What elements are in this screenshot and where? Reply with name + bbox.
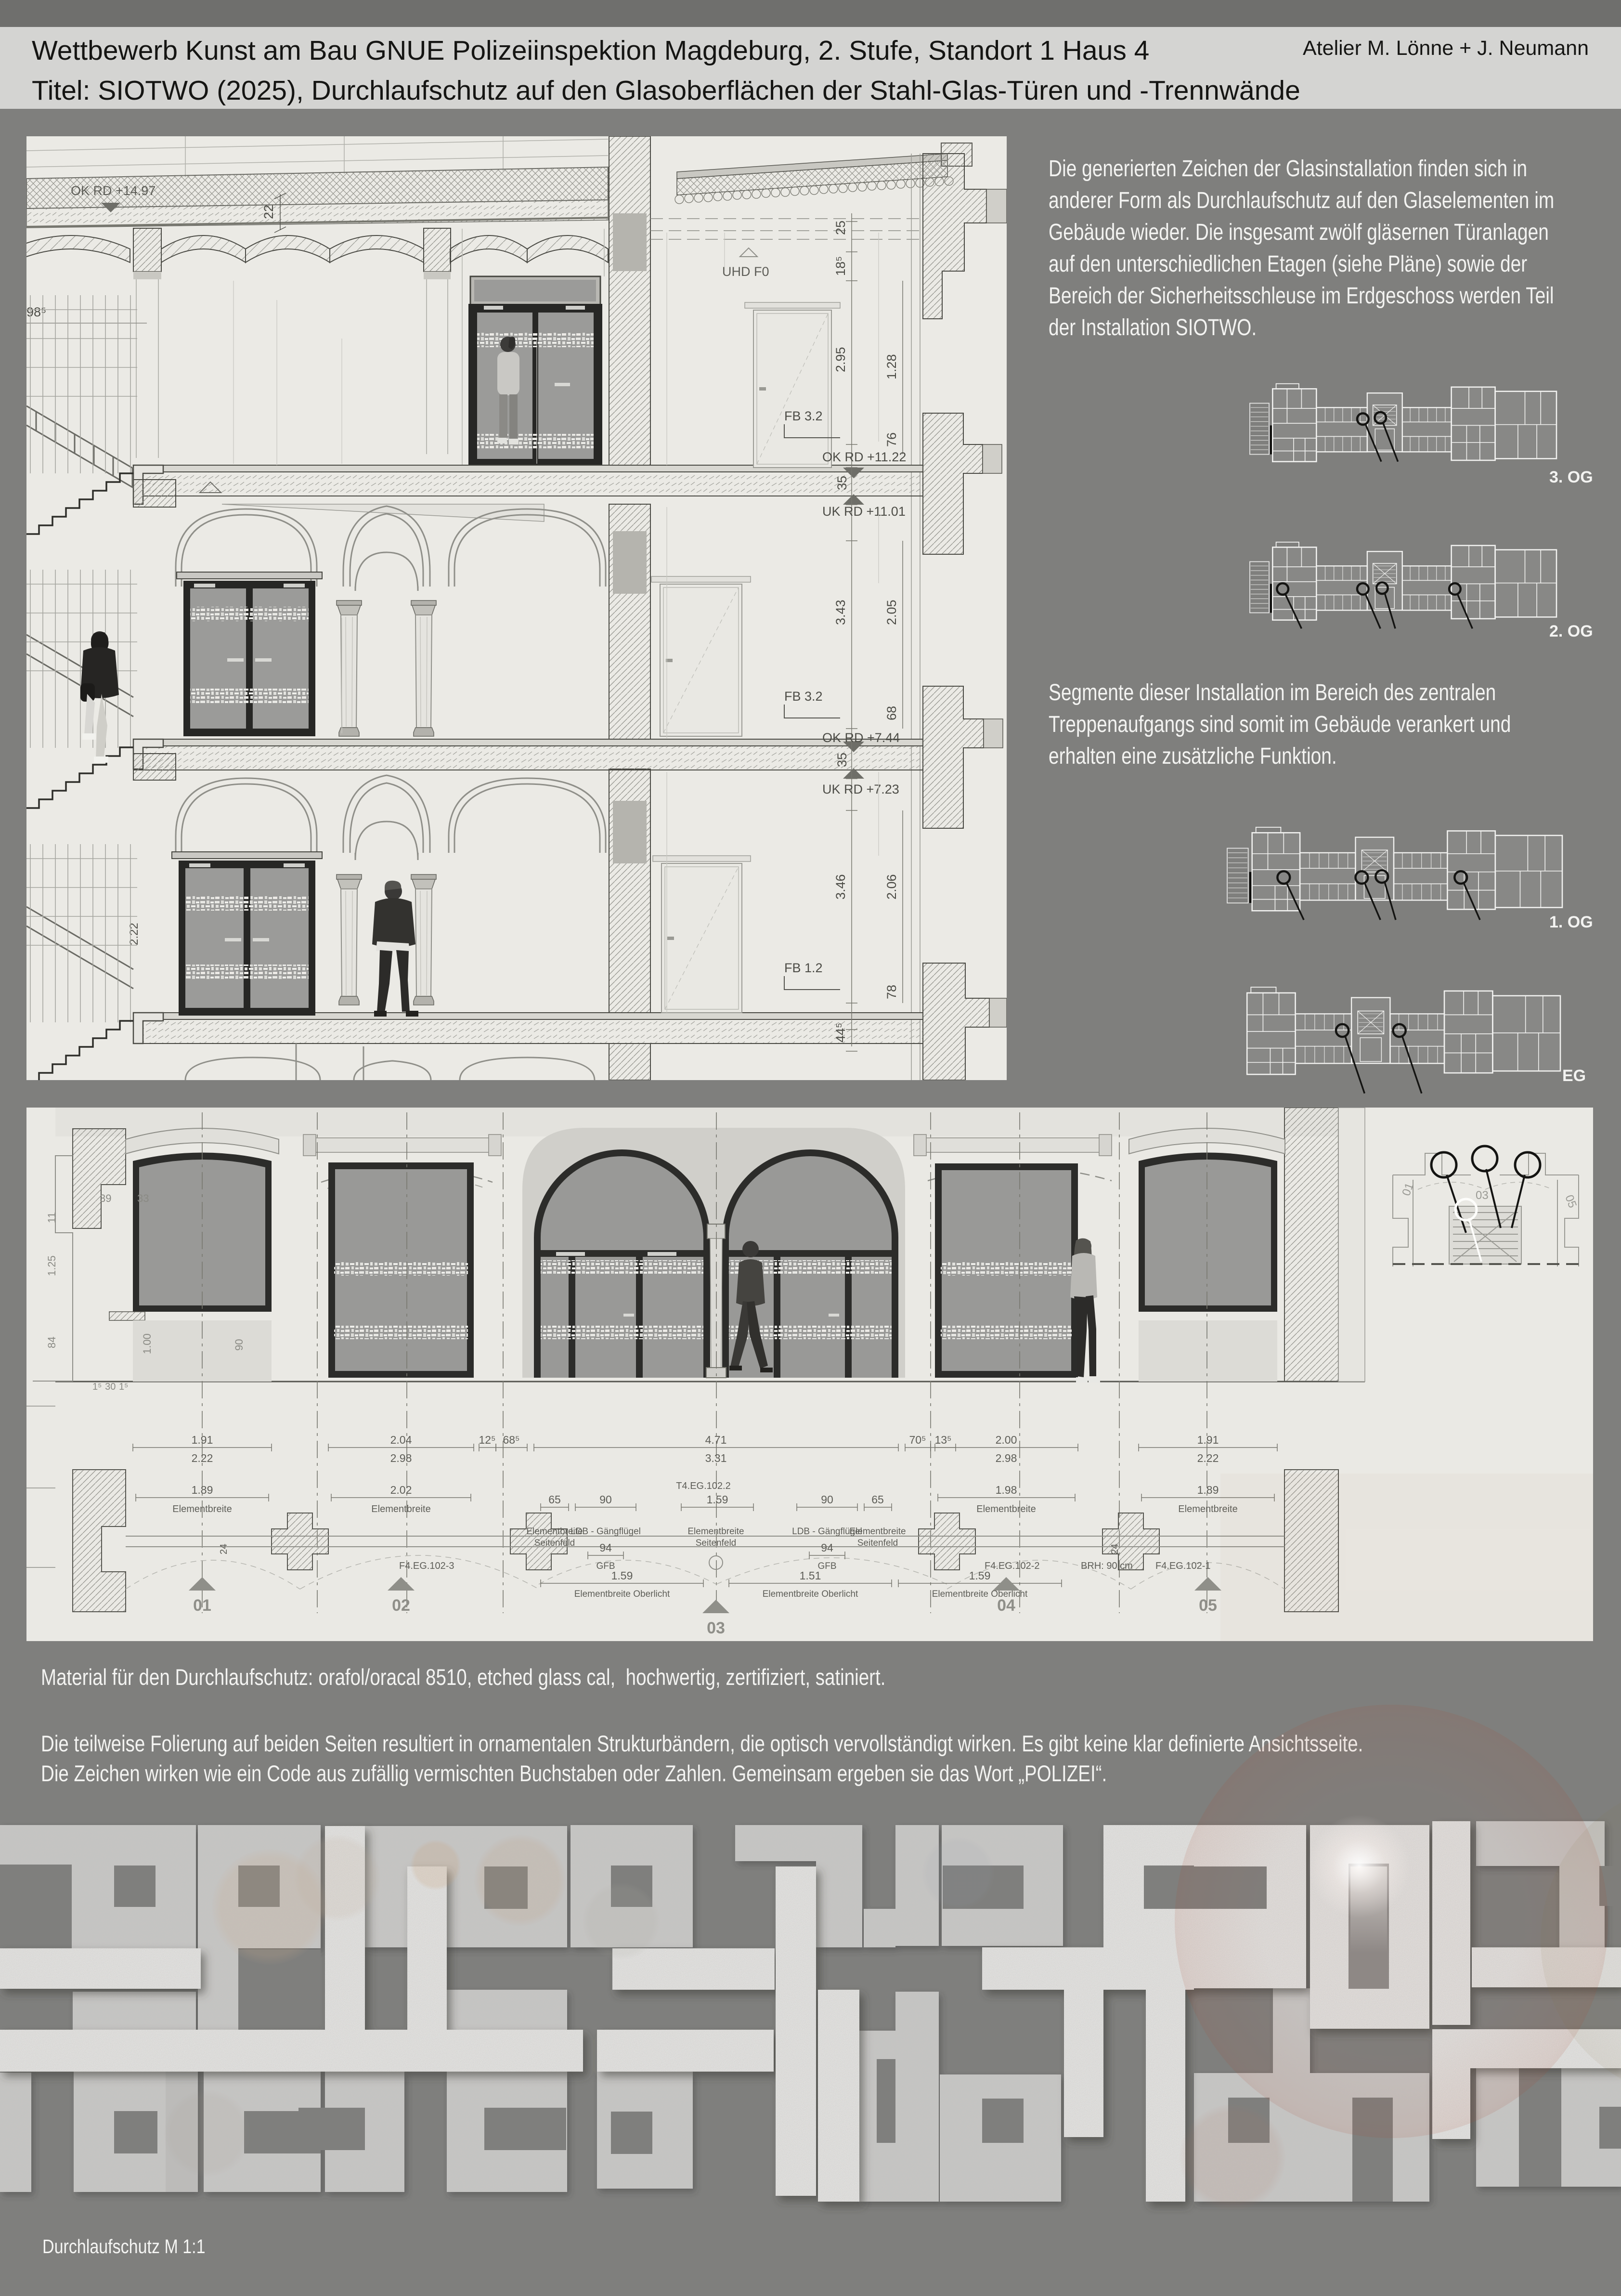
svg-text:01: 01 [193, 1596, 211, 1615]
svg-text:3.31: 3.31 [705, 1452, 727, 1464]
svg-text:39: 39 [100, 1192, 111, 1204]
svg-text:70⁵: 70⁵ [909, 1434, 926, 1446]
svg-text:2.05: 2.05 [884, 600, 899, 625]
svg-text:2.04: 2.04 [390, 1434, 412, 1446]
svg-text:3.46: 3.46 [833, 874, 848, 900]
svg-text:FB 1.2: FB 1.2 [784, 961, 823, 975]
svg-text:UK RD +7.23: UK RD +7.23 [822, 782, 899, 796]
svg-text:1.51: 1.51 [800, 1569, 821, 1582]
svg-text:1.91: 1.91 [1197, 1434, 1219, 1446]
svg-text:94: 94 [599, 1541, 612, 1554]
svg-text:84: 84 [46, 1337, 58, 1348]
svg-text:Elementbreite: Elementbreite [849, 1526, 906, 1537]
svg-text:Seitenfeld: Seitenfeld [696, 1538, 737, 1548]
svg-text:90: 90 [821, 1493, 833, 1506]
svg-text:1.59: 1.59 [611, 1569, 633, 1582]
svg-text:UK RD +11.01: UK RD +11.01 [822, 504, 906, 519]
svg-text:Elementbreite Oberlicht: Elementbreite Oberlicht [763, 1589, 858, 1599]
svg-text:68⁵: 68⁵ [503, 1434, 519, 1446]
svg-text:UHD F0: UHD F0 [722, 264, 769, 279]
svg-text:2.22: 2.22 [1197, 1452, 1219, 1464]
svg-text:LDB - Gängflügel: LDB - Gängflügel [571, 1526, 641, 1537]
svg-text:44⁵: 44⁵ [833, 1023, 848, 1043]
svg-text:18⁵: 18⁵ [833, 256, 848, 276]
svg-text:Elementbreite: Elementbreite [172, 1504, 232, 1514]
svg-text:90: 90 [599, 1493, 612, 1506]
svg-text:1.89: 1.89 [192, 1484, 213, 1496]
svg-text:2.98: 2.98 [390, 1452, 412, 1464]
svg-text:FB 3.2: FB 3.2 [784, 409, 823, 423]
svg-text:25: 25 [833, 221, 848, 235]
svg-text:OK RD +11.22: OK RD +11.22 [822, 450, 906, 464]
svg-text:4.71: 4.71 [705, 1434, 727, 1446]
svg-text:F4.EG.102-1: F4.EG.102-1 [1155, 1561, 1211, 1571]
svg-text:05: 05 [1199, 1596, 1217, 1615]
svg-text:35: 35 [835, 476, 849, 490]
svg-text:68: 68 [884, 706, 899, 720]
svg-text:1.91: 1.91 [192, 1434, 213, 1446]
svg-text:OK RD +7.44: OK RD +7.44 [822, 731, 900, 745]
svg-text:Seitenfeld: Seitenfeld [857, 1538, 898, 1548]
svg-text:Seitenfeld: Seitenfeld [534, 1538, 575, 1548]
svg-text:BRH: 90 cm: BRH: 90 cm [1081, 1561, 1133, 1571]
svg-text:98⁵: 98⁵ [26, 305, 46, 319]
svg-text:1.59: 1.59 [707, 1493, 728, 1506]
svg-text:02: 02 [392, 1596, 410, 1615]
svg-text:1.89: 1.89 [1197, 1484, 1219, 1496]
svg-text:1.98: 1.98 [996, 1484, 1017, 1496]
svg-text:2.22: 2.22 [192, 1452, 213, 1464]
svg-text:24: 24 [1110, 1544, 1120, 1554]
svg-text:OK RD +14.97: OK RD +14.97 [71, 183, 156, 198]
svg-text:78: 78 [884, 985, 899, 999]
svg-text:2.22: 2.22 [128, 923, 141, 945]
svg-text:1.28: 1.28 [884, 354, 899, 379]
svg-text:Elementbreite: Elementbreite [976, 1504, 1036, 1514]
svg-text:03: 03 [707, 1619, 725, 1637]
svg-text:1.25: 1.25 [46, 1255, 58, 1276]
svg-text:2.00: 2.00 [996, 1434, 1017, 1446]
svg-text:94: 94 [821, 1541, 833, 1554]
svg-text:2.02: 2.02 [390, 1484, 412, 1496]
svg-text:Elementbreite Oberlicht: Elementbreite Oberlicht [574, 1589, 670, 1599]
svg-text:13⁵: 13⁵ [934, 1434, 951, 1446]
svg-text:35: 35 [835, 753, 849, 767]
svg-text:F4.EG.102-2: F4.EG.102-2 [985, 1561, 1040, 1571]
svg-text:65: 65 [871, 1493, 884, 1506]
svg-text:FB 3.2: FB 3.2 [784, 689, 823, 704]
svg-text:03: 03 [1476, 1189, 1489, 1202]
svg-text:2.95: 2.95 [833, 347, 848, 372]
svg-text:65: 65 [548, 1493, 561, 1506]
svg-text:76: 76 [884, 432, 899, 447]
svg-text:1.00: 1.00 [141, 1333, 153, 1354]
svg-text:Elementbreite: Elementbreite [687, 1526, 744, 1537]
svg-text:04: 04 [997, 1596, 1015, 1615]
svg-text:2.98: 2.98 [996, 1452, 1017, 1464]
svg-text:1⁵ 30 1⁵: 1⁵ 30 1⁵ [92, 1382, 128, 1392]
svg-text:24: 24 [219, 1544, 229, 1554]
svg-text:22: 22 [261, 205, 276, 219]
svg-text:11: 11 [46, 1212, 58, 1223]
svg-text:F4.EG.102-3: F4.EG.102-3 [399, 1561, 454, 1571]
svg-text:33: 33 [137, 1192, 149, 1204]
svg-text:90: 90 [233, 1339, 245, 1351]
svg-text:12⁵: 12⁵ [479, 1434, 495, 1446]
svg-text:T4.EG.102.2: T4.EG.102.2 [676, 1481, 730, 1491]
svg-text:Elementbreite: Elementbreite [371, 1504, 430, 1514]
svg-text:3.43: 3.43 [833, 600, 848, 625]
svg-text:2.06: 2.06 [884, 874, 899, 900]
